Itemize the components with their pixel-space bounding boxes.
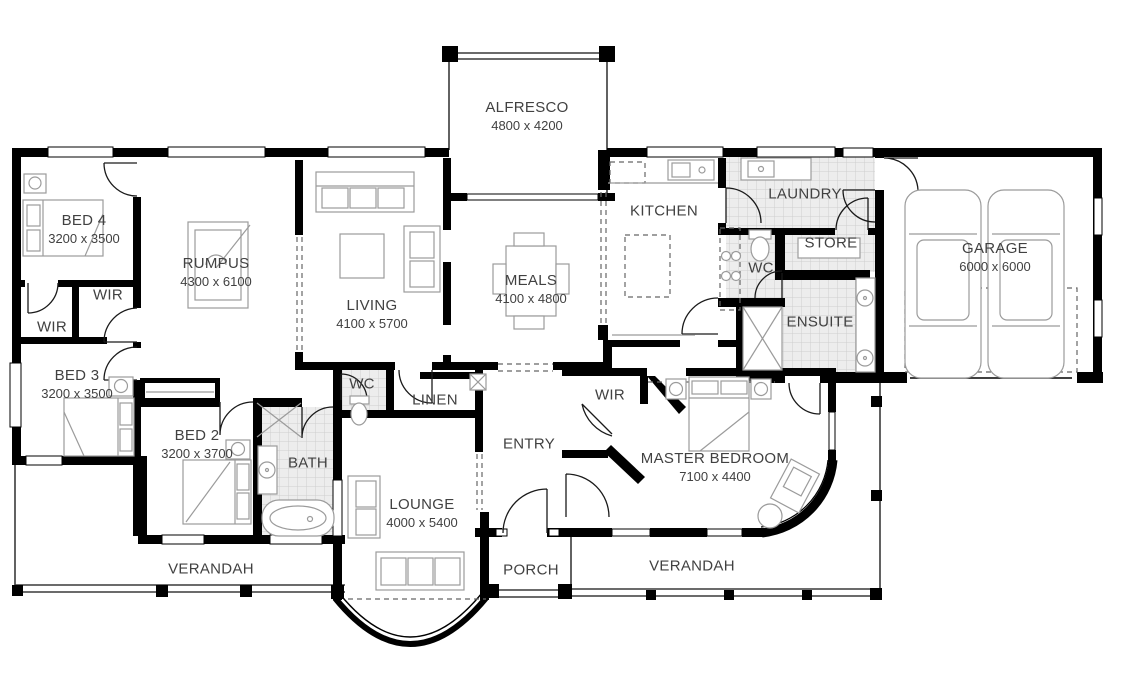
toilet-lower [350,396,369,425]
room-label-wc-lower: WC [349,374,375,394]
room-label-rumpus: RUMPUS 4300 x 6100 [180,254,252,290]
room-label-lounge: LOUNGE 4000 x 5400 [386,495,458,531]
room-label-wir-upper: WIR [93,285,123,305]
room-label-bed3: BED 3 3200 x 3500 [41,366,113,402]
room-label-linen: LINEN [412,390,458,410]
room-label-wc-upper: WC [748,258,774,278]
laundry-fixtures [741,158,811,180]
room-label-master: MASTER BEDROOM 7100 x 4400 [641,449,789,485]
room-label-alfresco: ALFRESCO 4800 x 4200 [485,98,568,134]
room-label-verandah-right: VERANDAH [649,556,735,576]
living-furniture [316,172,440,292]
car-right [988,190,1064,378]
room-label-bed4: BED 4 3200 x 3500 [48,211,120,247]
room-label-porch: PORCH [503,560,559,580]
room-label-verandah-left: VERANDAH [168,559,254,579]
floor-plan: ALFRESCO 4800 x 4200 BED 4 3200 x 3500 R… [0,0,1123,698]
room-label-store: STORE [805,233,858,253]
room-label-meals: MEALS 4100 x 4800 [495,271,567,307]
toilet-upper [749,230,771,261]
room-label-kitchen: KITCHEN [630,201,698,221]
room-label-living: LIVING 4100 x 5700 [336,296,408,332]
room-label-garage: GARAGE 6000 x 6000 [959,239,1031,275]
room-label-entry: ENTRY [503,434,555,454]
room-label-laundry: LAUNDRY [768,184,842,204]
furniture [23,158,1064,590]
room-label-ensuite: ENSUITE [786,312,853,332]
room-label-bath: BATH [288,453,328,473]
duct-box [470,374,486,390]
room-label-wir-master: WIR [595,385,625,405]
lounge-furniture [348,476,464,590]
car-left [905,190,981,378]
room-label-wir-lower: WIR [37,317,67,337]
room-label-bed2: BED 2 3200 x 3700 [161,426,233,462]
